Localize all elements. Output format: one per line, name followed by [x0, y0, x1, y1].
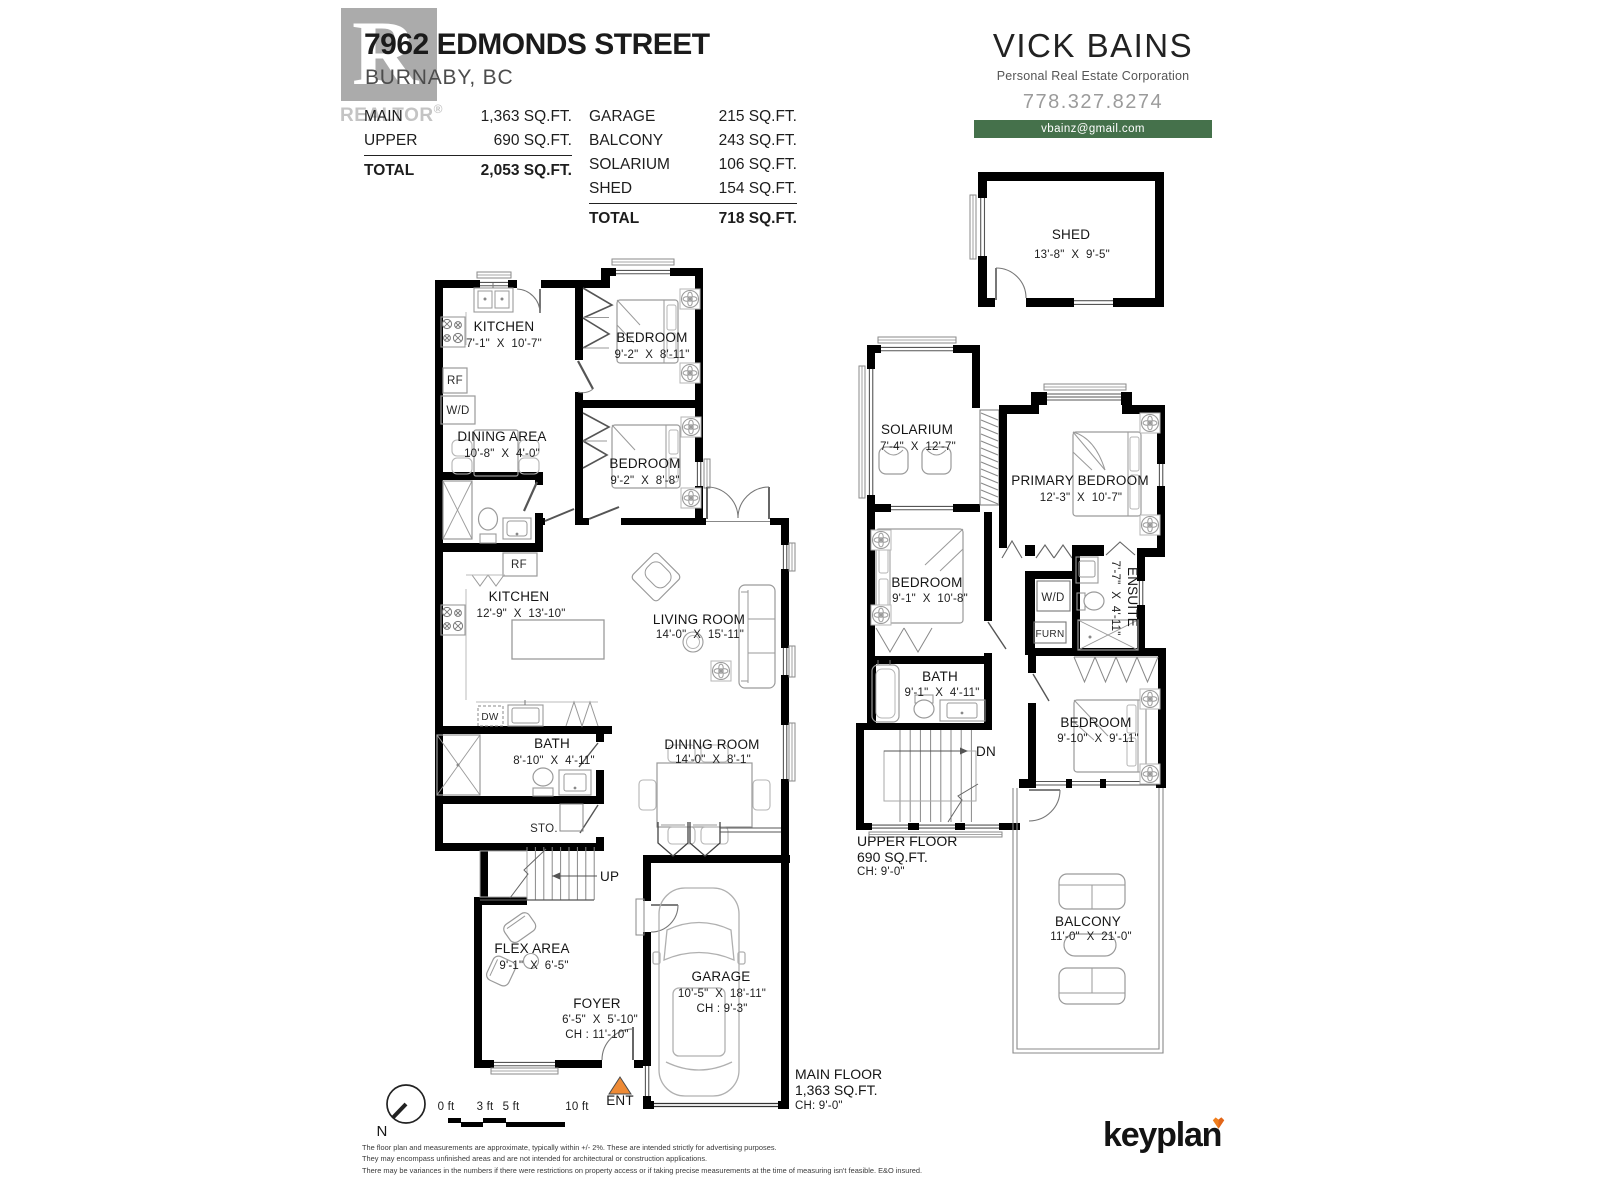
- svg-text:UPPER FLOOR: UPPER FLOOR: [857, 833, 957, 849]
- svg-text:BATH: BATH: [534, 736, 570, 751]
- svg-text:8'-10" X 4'-11": 8'-10" X 4'-11": [513, 755, 595, 767]
- svg-text:BATH: BATH: [922, 669, 958, 684]
- svg-text:BEDROOM: BEDROOM: [891, 575, 962, 590]
- svg-text:PRIMARY BEDROOM: PRIMARY BEDROOM: [1011, 473, 1149, 488]
- svg-text:SHED: SHED: [1052, 227, 1090, 242]
- svg-text:KITCHEN: KITCHEN: [474, 319, 535, 334]
- svg-text:14'-0" X 8'-1": 14'-0" X 8'-1": [675, 754, 751, 766]
- svg-text:9'-10" X 9'-11": 9'-10" X 9'-11": [1057, 733, 1139, 745]
- svg-text:N: N: [376, 1123, 387, 1140]
- svg-text:UP: UP: [600, 869, 619, 884]
- svg-text:10'-5" X 18'-11": 10'-5" X 18'-11": [678, 988, 766, 1000]
- svg-text:CH : 9'-3": CH : 9'-3": [696, 1003, 747, 1015]
- svg-text:W/D: W/D: [446, 405, 469, 417]
- svg-text:CH: 9'-0": CH: 9'-0": [795, 1100, 843, 1112]
- svg-text:7'-4" X 12'-7": 7'-4" X 12'-7": [880, 441, 956, 453]
- svg-text:6'-5" X 5'-10": 6'-5" X 5'-10": [562, 1014, 638, 1026]
- svg-text:14'-0" X 15'-11": 14'-0" X 15'-11": [656, 629, 744, 641]
- svg-text:FURN: FURN: [1036, 629, 1065, 640]
- svg-text:W/D: W/D: [1041, 592, 1064, 604]
- svg-text:BEDROOM: BEDROOM: [1060, 715, 1131, 730]
- svg-text:10'-8" X 4'-0": 10'-8" X 4'-0": [464, 448, 540, 460]
- svg-text:690 SQ.FT.: 690 SQ.FT.: [857, 849, 928, 865]
- svg-text:9'-2" X 8'-8": 9'-2" X 8'-8": [610, 475, 679, 487]
- svg-text:BEDROOM: BEDROOM: [609, 456, 680, 471]
- svg-text:5 ft: 5 ft: [503, 1101, 520, 1113]
- svg-text:DINING AREA: DINING AREA: [457, 429, 546, 444]
- svg-text:CH: 9'-0": CH: 9'-0": [857, 866, 905, 878]
- svg-text:KITCHEN: KITCHEN: [489, 589, 550, 604]
- svg-text:0 ft: 0 ft: [438, 1101, 455, 1113]
- svg-text:1,363 SQ.FT.: 1,363 SQ.FT.: [795, 1082, 877, 1098]
- svg-text:RF: RF: [511, 559, 527, 571]
- svg-text:7'-1" X 10'-7": 7'-1" X 10'-7": [466, 338, 542, 350]
- svg-text:9'-1" X 6'-5": 9'-1" X 6'-5": [499, 960, 568, 972]
- svg-text:RF: RF: [447, 375, 463, 387]
- svg-text:FLEX AREA: FLEX AREA: [494, 941, 569, 956]
- svg-text:11'-0" X 21'-0": 11'-0" X 21'-0": [1050, 931, 1132, 943]
- svg-text:9'-1" X 10'-8": 9'-1" X 10'-8": [892, 593, 968, 605]
- svg-text:13'-8" X 9'-5": 13'-8" X 9'-5": [1034, 249, 1110, 261]
- svg-text:3 ft: 3 ft: [477, 1101, 494, 1113]
- svg-text:MAIN FLOOR: MAIN FLOOR: [795, 1066, 882, 1082]
- svg-text:BEDROOM: BEDROOM: [616, 330, 687, 345]
- svg-text:ENT: ENT: [606, 1093, 634, 1108]
- svg-text:STO.: STO.: [530, 823, 558, 835]
- svg-text:FOYER: FOYER: [573, 996, 621, 1011]
- svg-text:12'-3" X 10'-7": 12'-3" X 10'-7": [1040, 492, 1122, 504]
- svg-text:9'-2" X 8'-11": 9'-2" X 8'-11": [615, 349, 690, 361]
- svg-text:CH : 11'-10": CH : 11'-10": [565, 1029, 628, 1041]
- svg-text:LIVING ROOM: LIVING ROOM: [653, 612, 745, 627]
- svg-text:DN: DN: [976, 744, 996, 759]
- svg-text:SOLARIUM: SOLARIUM: [881, 422, 953, 437]
- svg-text:7'-7" X 4'-11": 7'-7" X 4'-11": [1109, 561, 1121, 636]
- svg-text:DW: DW: [481, 712, 499, 723]
- svg-text:ENSUITE: ENSUITE: [1125, 567, 1140, 627]
- svg-text:9'-1" X 4'-11": 9'-1" X 4'-11": [905, 687, 980, 699]
- svg-text:DINING ROOM: DINING ROOM: [664, 737, 759, 752]
- svg-text:GARAGE: GARAGE: [692, 969, 751, 984]
- svg-text:BALCONY: BALCONY: [1055, 914, 1121, 929]
- svg-text:12'-9" X 13'-10": 12'-9" X 13'-10": [476, 608, 565, 620]
- svg-text:10 ft: 10 ft: [565, 1101, 589, 1113]
